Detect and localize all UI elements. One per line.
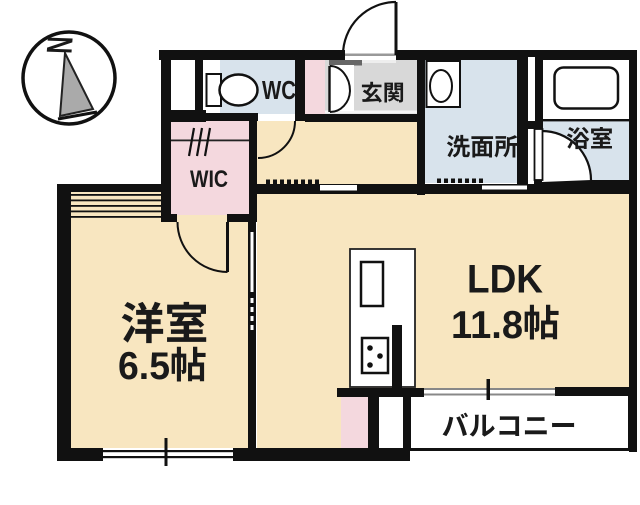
svg-text:WIC: WIC [190,166,228,193]
svg-text:N: N [38,36,79,55]
svg-text:WC: WC [262,75,296,105]
svg-text:6.5: 6.5 [118,345,170,388]
svg-text:LDK: LDK [467,258,543,302]
svg-text:11.8: 11.8 [451,304,523,347]
